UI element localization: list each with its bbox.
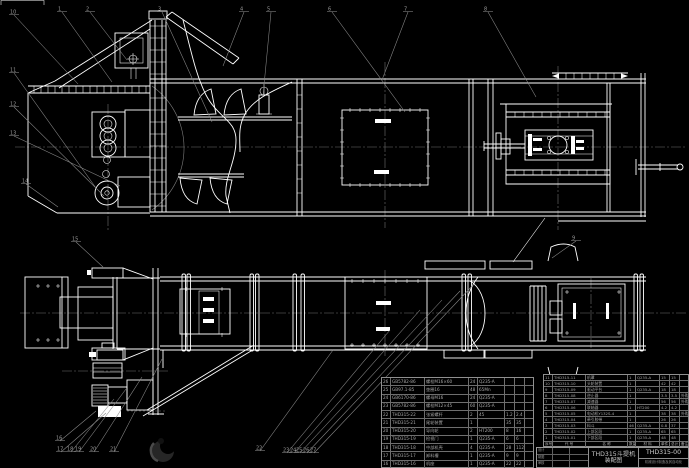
bom-cell: 2 — [469, 411, 478, 418]
signature-cell — [553, 461, 570, 467]
callout-number: 10 — [10, 10, 16, 16]
signature-cell — [570, 461, 587, 467]
bom-cell: 逆止器 — [586, 393, 628, 398]
callout-number: 3 — [158, 7, 161, 13]
bom-cell: 检视门 — [425, 436, 469, 443]
bom-cell — [525, 428, 533, 435]
bom-cell — [680, 417, 688, 422]
bom-cell — [525, 386, 533, 393]
bom-cell: 4 — [469, 444, 478, 451]
bom-cell: GB6170-86 — [391, 395, 425, 402]
bom-cell: 6 — [505, 436, 515, 443]
leader-line — [90, 12, 127, 60]
bom-cell: 26 — [382, 378, 391, 385]
bom-cell: 23 — [382, 403, 391, 410]
title-cell: THD315斗提机 装配图 — [589, 448, 639, 467]
callout-number: 11 — [10, 68, 16, 74]
bom-cell: 65 — [670, 429, 680, 434]
callout-number: 20 — [90, 447, 96, 453]
bom-cell: 机座 — [425, 461, 469, 468]
bom-cell: THD315-22 — [391, 411, 425, 418]
bom-cell: 料斗 — [586, 423, 628, 428]
bom-cell: 卸料槽 — [425, 452, 469, 459]
organization-name: 机械设计制造及其自动化 — [639, 459, 688, 467]
watermark-blob — [151, 438, 176, 462]
bom-cell: Q235-A — [636, 435, 660, 440]
signature-cell: 设计 — [537, 448, 553, 454]
bom-row: 18THD315-18中部机壳4Q235-A28112 — [382, 444, 533, 452]
leader-line — [14, 136, 120, 186]
signature-cell — [553, 455, 570, 461]
bom-cell: 1 — [628, 435, 636, 440]
bom-cell — [680, 405, 688, 410]
bom-cell: HT200 — [636, 405, 660, 410]
bom-cell: 3.5 — [670, 393, 680, 398]
bom-cell: 1 — [469, 436, 478, 443]
bom-cell: 8 — [505, 428, 515, 435]
bom-cell: 26 — [670, 417, 680, 422]
bom-cell: 35 — [515, 419, 525, 426]
bom-cell: THD315-11 — [553, 375, 586, 380]
leader-line — [26, 184, 58, 207]
bom-cell: 22 — [382, 411, 391, 418]
bom-cell: 驱动平台 — [586, 387, 628, 392]
bom-row: 25GB97.1-85垫圈164865Mn — [382, 386, 533, 394]
bom-cell: Q235-A — [478, 378, 505, 385]
bom-row: 19THD315-19检视门1Q235-A66 — [382, 436, 533, 444]
bom-cell: 56 — [660, 399, 670, 404]
bom-cell: THD315-20 — [391, 428, 425, 435]
signature-row: 审核 — [537, 461, 588, 467]
bom-cell: Q235-A — [478, 452, 505, 459]
bom-cell: 6 — [515, 436, 525, 443]
bom-cell: 0.8 — [660, 423, 670, 428]
bom-cell: 15 — [670, 375, 680, 380]
bom-row: 20THD315-20导向轮2HT200816 — [382, 428, 533, 436]
bom-cell — [680, 435, 688, 440]
bom-cell — [525, 378, 533, 385]
bom-row: 23GB5782-86螺栓M12×4560Q235-A — [382, 403, 533, 411]
bom-cell: 24 — [469, 378, 478, 385]
bom-cell: GB5782-86 — [391, 403, 425, 410]
leader-line — [14, 15, 78, 84]
bom-cell: THD315-18 — [391, 444, 425, 451]
signature-row: 设计 — [537, 448, 588, 455]
leader-line — [223, 12, 244, 66]
leader-line — [382, 12, 408, 80]
bom-cell — [636, 399, 660, 404]
bom-cell — [515, 395, 525, 402]
bom-cell: 1 — [628, 405, 636, 410]
callout-number: 6 — [328, 7, 331, 13]
bom-cell — [680, 429, 688, 434]
leader-line — [76, 242, 103, 267]
leader-line — [332, 12, 405, 112]
bom-cell: 1 — [628, 417, 636, 422]
bom-cell: 尾轮装置 — [425, 419, 469, 426]
bom-cell: 56 — [670, 399, 680, 404]
title-block: 设计制图审核 THD315斗提机 装配图 THD315-00 机械设计制造及其自… — [536, 447, 689, 468]
callout-number: 27 — [310, 448, 316, 454]
bom-cell: 1 — [628, 375, 636, 380]
bom-cell: THD315-03 — [553, 423, 586, 428]
drawing-number: THD315-00 — [639, 448, 688, 459]
bom-cell: 外购 — [680, 393, 688, 398]
bom-cell: 18 — [382, 444, 391, 451]
bom-cell — [505, 403, 515, 410]
bom-cell: HT200 — [478, 428, 505, 435]
bom-cell: 4 — [544, 417, 553, 422]
bom-cell: 2.4 — [515, 411, 525, 418]
bom-cell — [636, 393, 660, 398]
chain-pitch-arc — [152, 86, 184, 210]
bom-cell: 导向轮 — [425, 428, 469, 435]
bom-cell: 26 — [660, 417, 670, 422]
callout-number: 12 — [10, 102, 16, 108]
bom-cell: 42 — [660, 381, 670, 386]
bom-cell: 112 — [515, 444, 525, 451]
bom-cell: 1 — [469, 419, 478, 426]
bom-cell: 18 — [670, 387, 680, 392]
bom-cell: THD315-16 — [391, 461, 425, 468]
bom-cell: Q235-A — [636, 429, 660, 434]
bom-cell: 9 — [515, 452, 525, 459]
callout-number: 17 — [57, 447, 63, 453]
bom-cell: Q235-A — [636, 423, 660, 428]
bom-cell: THD315-02 — [553, 429, 586, 434]
bom-cell: 1 — [628, 429, 636, 434]
callout-number: 23 — [283, 448, 289, 454]
bom-cell: 24 — [382, 395, 391, 402]
bom-cell: 24 — [469, 395, 478, 402]
bom-cell: 机罩 — [586, 375, 628, 380]
signature-row: 制图 — [537, 455, 588, 462]
bom-cell: 15 — [660, 375, 670, 380]
callout-number: 25 — [296, 448, 302, 454]
bom-cell: Q235-A — [478, 444, 505, 451]
callout-number: 9 — [572, 236, 575, 242]
bom-row: 22THD315-22张紧螺杆2451.22.4 — [382, 411, 533, 419]
parts-list-right: 11THD315-11机罩1Q235-A151510THD315-10头轮装置1… — [543, 374, 689, 447]
bom-cell: 22 — [505, 461, 515, 468]
bom-cell: THD315-06 — [553, 405, 586, 410]
callout-number: 21 — [110, 447, 116, 453]
bom-cell: 45 — [478, 411, 505, 418]
bom-cell: 37 — [670, 423, 680, 428]
bom-cell — [525, 436, 533, 443]
bom-cell: 外购 — [680, 411, 688, 416]
bom-cell — [525, 461, 533, 468]
callout-number: 22 — [256, 446, 262, 452]
bom-cell: 6 — [544, 405, 553, 410]
bom-cell: 1 — [628, 411, 636, 416]
callout-number: 26 — [303, 448, 309, 454]
bom-cell: 1 — [628, 393, 636, 398]
leader-line — [287, 330, 390, 453]
bom-cell: 螺母M16 — [425, 395, 469, 402]
bom-cell: Q235-A — [636, 375, 660, 380]
bom-cell — [525, 419, 533, 426]
bom-cell: THD315-01 — [553, 435, 586, 440]
bom-cell: Q235-A — [478, 436, 505, 443]
bom-cell: 20 — [382, 428, 391, 435]
bom-cell: THD315-09 — [553, 387, 586, 392]
bom-cell: 22 — [515, 461, 525, 468]
cad-drawing-canvas: 1234567891011121314151617181920212223242… — [0, 0, 689, 468]
bom-cell: 联轴器 — [586, 405, 628, 410]
bom-cell: 8 — [544, 393, 553, 398]
bom-cell — [680, 423, 688, 428]
bom-cell: 1 — [469, 461, 478, 468]
bom-cell: 1 — [544, 435, 553, 440]
bom-cell: 外购 — [680, 399, 688, 404]
signature-cell — [570, 455, 587, 461]
callout-number: 5 — [267, 7, 270, 13]
bom-cell — [525, 395, 533, 402]
bom-cell: GB5782-86 — [391, 378, 425, 385]
bom-cell: 18 — [660, 387, 670, 392]
bom-cell: 28 — [505, 444, 515, 451]
bom-cell: 48 — [670, 435, 680, 440]
callout-number: 19 — [75, 447, 81, 453]
bom-cell: 1 — [469, 452, 478, 459]
bom-cell — [525, 444, 533, 451]
callout-number: 13 — [10, 131, 16, 137]
bom-cell: 19 — [382, 436, 391, 443]
bom-cell — [515, 386, 525, 393]
bom-cell — [636, 411, 660, 416]
bom-cell — [525, 403, 533, 410]
bom-cell: GB97.1-85 — [391, 386, 425, 393]
bom-cell — [505, 395, 515, 402]
bom-cell: 1 — [628, 387, 636, 392]
leader-line — [260, 350, 333, 451]
bom-cell: 42 — [670, 381, 680, 386]
bom-cell: THD315-19 — [391, 436, 425, 443]
bom-cell: 4.2 — [670, 405, 680, 410]
frame-corner — [1, 1, 44, 6]
bom-cell: THD315-10 — [553, 381, 586, 386]
callout-number: 14 — [22, 179, 28, 185]
bom-cell: 65Mn — [478, 386, 505, 393]
bom-cell — [525, 411, 533, 418]
bom-cell — [505, 386, 515, 393]
bom-cell: 2 — [544, 429, 553, 434]
bom-cell: 3 — [544, 423, 553, 428]
bom-cell — [515, 378, 525, 385]
bom-cell: Q235-A — [636, 387, 660, 392]
signature-grid: 设计制图审核 — [537, 448, 589, 467]
bom-cell: 4.2 — [660, 405, 670, 410]
bom-cell: 25 — [382, 386, 391, 393]
bom-cell: THD315-08 — [553, 393, 586, 398]
bom-cell: 38 — [660, 411, 670, 416]
bom-cell: 16 — [515, 428, 525, 435]
callout-number: 15 — [72, 237, 78, 243]
bom-cell: 中部机壳 — [425, 444, 469, 451]
bom-cell: 9 — [505, 452, 515, 459]
bom-cell — [680, 375, 688, 380]
bom-cell: Q235-A — [478, 461, 505, 468]
bom-cell: 48 — [469, 386, 478, 393]
bom-cell: THD315-05 — [553, 411, 586, 416]
bom-cell: 38 — [670, 411, 680, 416]
bom-row: 16THD315-16机座1Q235-A2222 — [382, 461, 533, 468]
parts-list-left: 26GB5782-86螺栓M16×6024Q235-A25GB97.1-85垫圈… — [381, 377, 534, 468]
leader-line — [488, 12, 536, 97]
signature-cell: 审核 — [537, 461, 553, 467]
bom-cell: 螺栓M12×45 — [425, 403, 469, 410]
bom-cell: 5 — [544, 411, 553, 416]
leader-line — [162, 12, 212, 122]
bom-cell — [515, 403, 525, 410]
callout-number: 7 — [404, 7, 407, 13]
bom-cell — [680, 381, 688, 386]
bom-cell: 垫圈16 — [425, 386, 469, 393]
callout-number: 16 — [56, 436, 62, 442]
bom-cell — [505, 378, 515, 385]
callout-number: 1 — [58, 7, 61, 13]
bom-cell: 1 — [628, 399, 636, 404]
bom-cell — [525, 452, 533, 459]
leader-line — [71, 399, 114, 452]
product-title: THD315斗提机 — [592, 451, 636, 458]
drawing-number-zone: THD315-00 机械设计制造及其自动化 — [639, 448, 688, 467]
bom-cell: 17 — [382, 452, 391, 459]
callout-number: 8 — [484, 7, 487, 13]
signature-cell: 制图 — [537, 455, 553, 461]
bom-cell: THD315-17 — [391, 452, 425, 459]
elevation-view — [15, 11, 686, 262]
bom-cell: THD315-21 — [391, 419, 425, 426]
signature-cell — [553, 448, 570, 454]
bom-cell: 1 — [628, 381, 636, 386]
bom-row: 21THD315-21尾轮装置13535 — [382, 419, 533, 427]
bom-cell — [478, 419, 505, 426]
bom-cell: 60 — [469, 403, 478, 410]
bom-cell: Q235-A — [478, 395, 505, 402]
bom-cell: 1.2 — [505, 411, 515, 418]
bom-cell: 7 — [544, 399, 553, 404]
bom-cell: 下部区段 — [586, 435, 628, 440]
bom-cell: 48 — [660, 435, 670, 440]
bom-cell: 9 — [544, 387, 553, 392]
callout-number: 4 — [240, 7, 243, 13]
bom-cell: 10 — [544, 381, 553, 386]
bom-cell: 35 — [505, 419, 515, 426]
bom-cell: 牵引胶带 — [586, 417, 628, 422]
bom-cell: 21 — [382, 419, 391, 426]
bom-cell: Q235-A — [478, 403, 505, 410]
bom-cell: 螺栓M16×60 — [425, 378, 469, 385]
doc-type-label: 装配图 — [605, 458, 622, 465]
bom-row: 26GB5782-86螺栓M16×6024Q235-A — [382, 378, 533, 386]
bom-row: 17THD315-17卸料槽1Q235-A99 — [382, 452, 533, 460]
bom-cell: 头轮装置 — [586, 381, 628, 386]
bom-cell: 减速器 — [586, 399, 628, 404]
bom-cell: THD315-04 — [553, 417, 586, 422]
bom-cell: 11 — [544, 375, 553, 380]
bom-row: 24GB6170-86螺母M1624Q235-A — [382, 395, 533, 403]
leader-line — [552, 241, 576, 258]
bom-cell: 46 — [628, 423, 636, 428]
bom-cell: 16 — [382, 461, 391, 468]
bom-cell: 65 — [660, 429, 670, 434]
bom-cell — [636, 417, 660, 422]
bom-cell — [680, 387, 688, 392]
bom-cell — [636, 381, 660, 386]
bom-cell: 上部区段 — [586, 429, 628, 434]
bom-cell: 张紧螺杆 — [425, 411, 469, 418]
callout-number: 2 — [86, 7, 89, 13]
bom-cell: 3.5 — [660, 393, 670, 398]
bom-cell: 2 — [469, 428, 478, 435]
signature-cell — [570, 448, 587, 454]
bom-cell: THD315-07 — [553, 399, 586, 404]
callout-number: 18 — [67, 447, 73, 453]
bom-cell: 电动机Y132S-4 — [586, 411, 628, 416]
